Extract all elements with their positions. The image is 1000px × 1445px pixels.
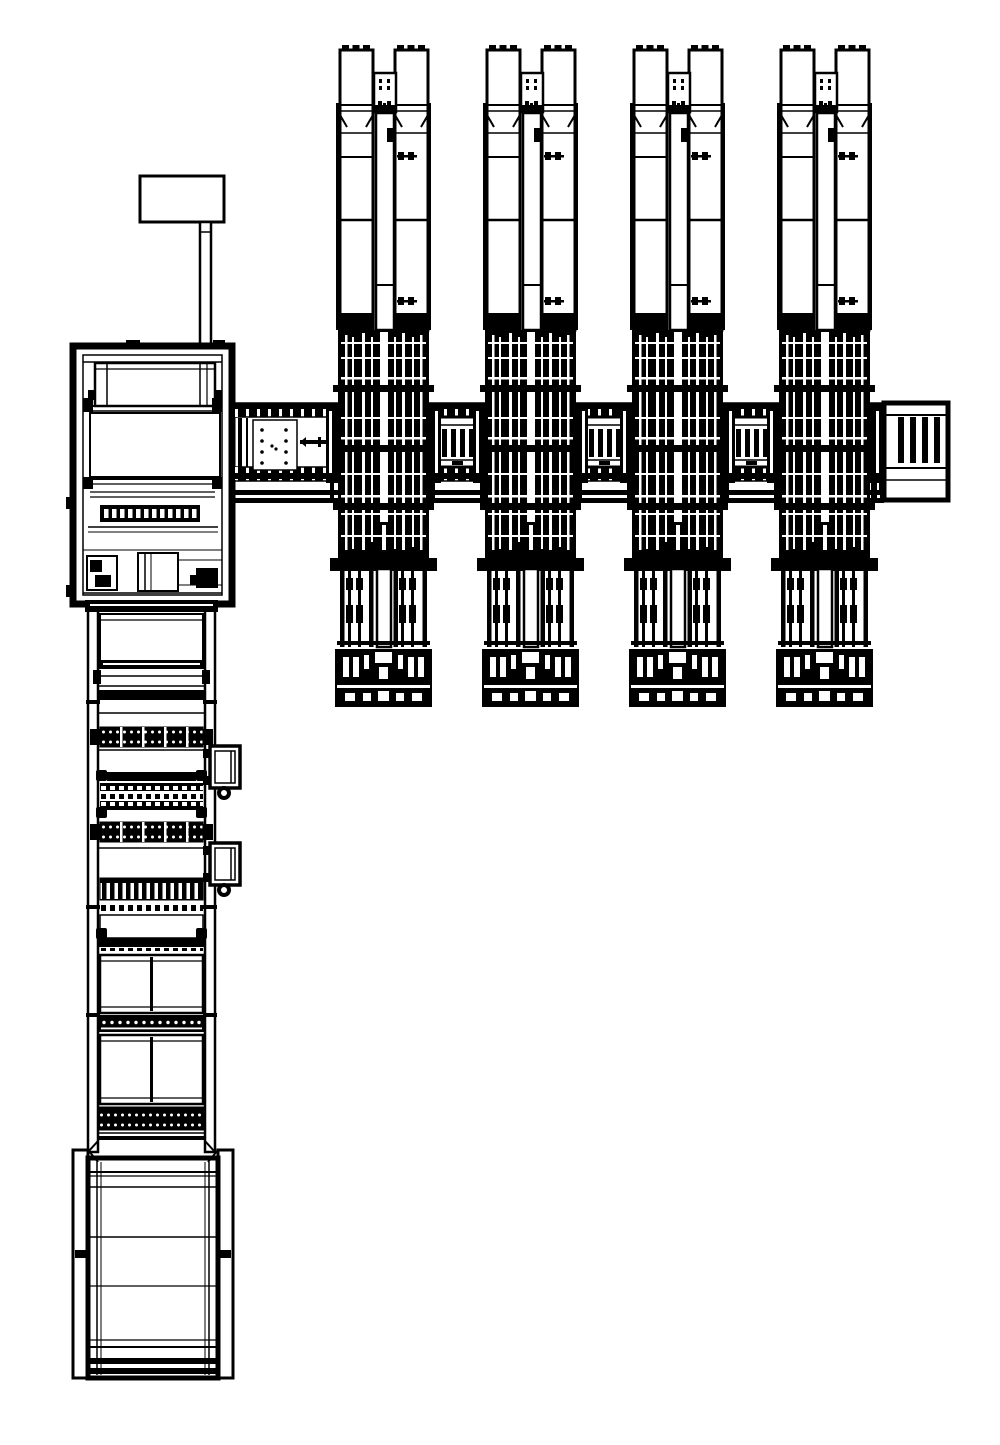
dot-band-1 (98, 1015, 205, 1032)
operator-station (66, 176, 244, 604)
main-cabinet (66, 340, 244, 604)
cabinet-comb-strip (100, 505, 200, 522)
line-panel-a (100, 614, 203, 668)
tall-dot-band (98, 1107, 205, 1130)
perforated-band-1 (90, 727, 213, 747)
machine-layout-drawing (0, 0, 1000, 1445)
monitor-panel (140, 176, 224, 222)
dash-row (100, 903, 203, 911)
line-drawing-svg (0, 0, 1000, 1445)
station-tower-2 (473, 45, 588, 707)
line-left-rail (88, 604, 98, 1152)
station-tower-1 (326, 45, 441, 707)
stations-layer (326, 45, 882, 707)
perforated-band-2 (90, 822, 213, 842)
line-panel-b (100, 915, 203, 938)
window-panel-2 (100, 1035, 203, 1104)
station-tower-4 (767, 45, 882, 707)
teeth-band (100, 878, 203, 900)
process-line (85, 600, 240, 1152)
work-table-panel (90, 413, 220, 477)
end-cabinet (73, 1150, 233, 1378)
conveyor-end-frame (871, 403, 948, 500)
monitor-pole (200, 222, 211, 346)
dotted-plate (253, 420, 297, 470)
station-tower-3 (620, 45, 735, 707)
roller-assembly (96, 770, 207, 818)
window-panel-1 (100, 955, 203, 1013)
